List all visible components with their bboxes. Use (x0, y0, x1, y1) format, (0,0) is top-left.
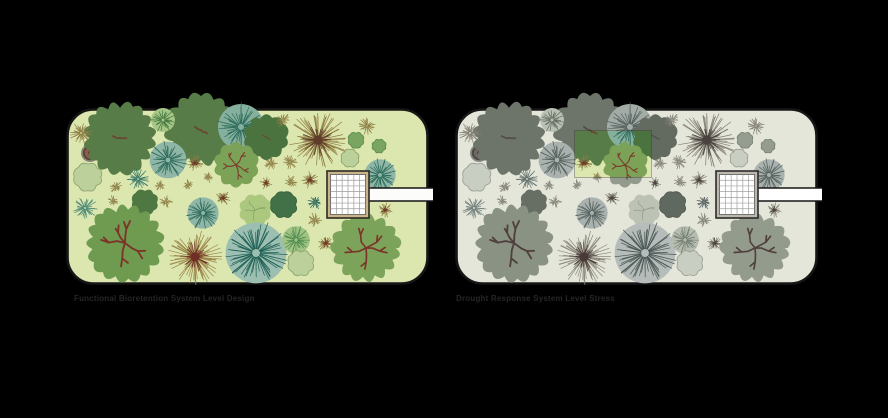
left-plan-caption: Functional Bioretention System Level Des… (74, 294, 255, 303)
walkway-path (751, 188, 822, 201)
garden-drawing (575, 131, 651, 177)
walkway-path (362, 188, 433, 201)
highlighted-color-zone (575, 131, 651, 177)
greenhouse-structure (327, 171, 369, 218)
garden-drawing (66, 108, 446, 290)
garden-plan-desaturated (455, 108, 835, 290)
right-plan-caption: Drought Response System Level Stress (456, 294, 615, 303)
greenhouse-structure (716, 171, 758, 218)
garden-plan-color (66, 108, 446, 290)
